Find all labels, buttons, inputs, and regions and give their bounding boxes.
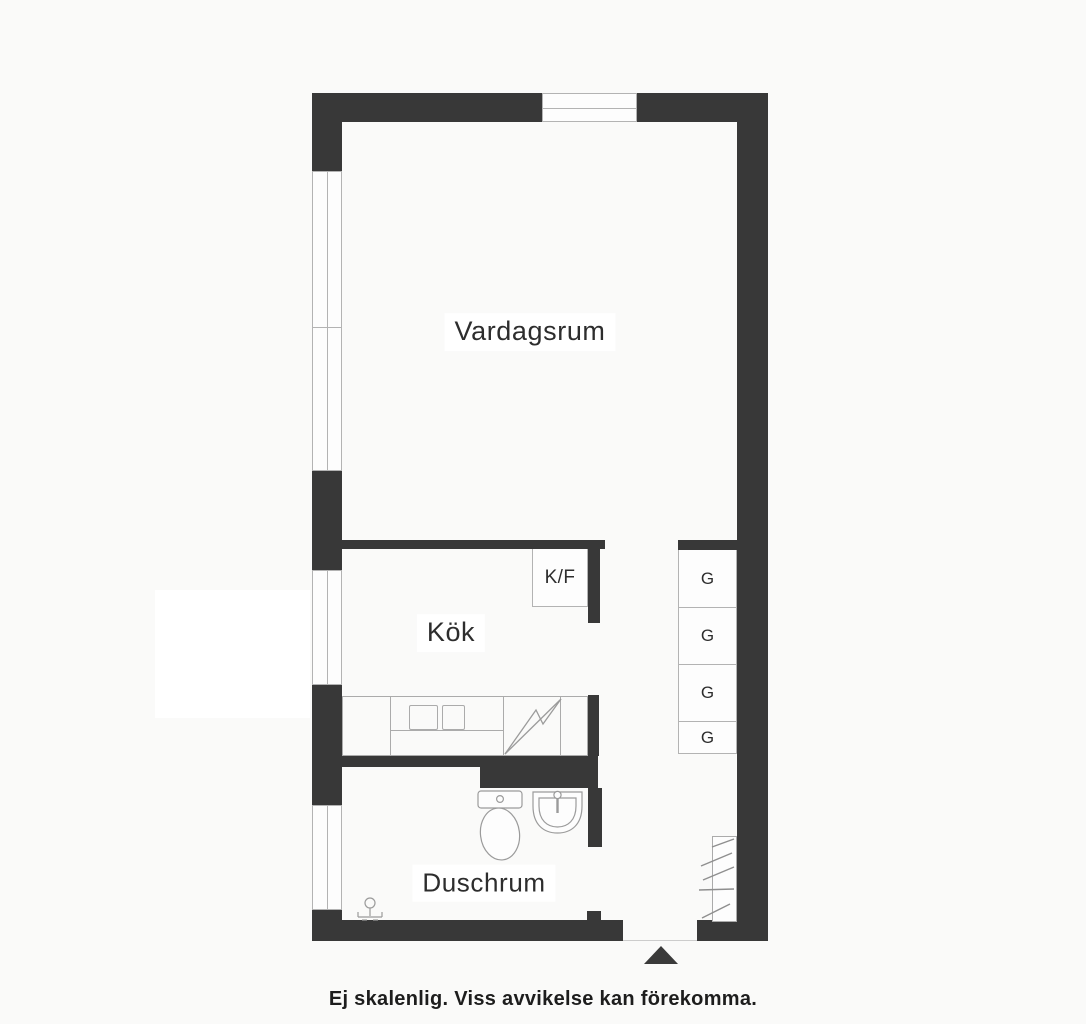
background-patch [155,590,310,718]
disclaimer-text: Ej skalenlig. Viss avvikelse kan förekom… [0,988,1086,1011]
wall-wardrobe-header [678,540,737,550]
toilet-icon [477,791,522,862]
wall-shower-right [588,788,602,847]
counter-edge-line [390,730,504,731]
room-label-living: Vardagsrum [444,313,615,351]
window-divider [313,327,341,328]
room-label-shower: Duschrum [412,865,555,902]
wardrobe-label: G [701,728,714,748]
wardrobe-cell: G [679,607,736,664]
window-left-3 [312,805,342,910]
room-label-kitchen: Kök [417,614,485,652]
stove-burner-icon [409,705,438,730]
wall-shower-door-jamb [587,911,601,921]
shower-drain-icon [358,898,382,920]
window-glazing-line [327,571,328,684]
wall-right [737,93,768,941]
stove-burner-icon [442,705,465,730]
wardrobe-label: G [701,683,714,703]
sink-icon [533,791,582,833]
wardrobe-cell: G [679,721,736,753]
window-left-1 [312,171,342,471]
entrance-arrow-icon [644,946,678,964]
wardrobe-label: G [701,569,714,589]
counter-divider [503,697,504,755]
counter-divider [560,697,561,755]
window-left-2 [312,570,342,685]
wall-left-segment-2 [312,471,342,570]
fridge-freezer-label: K/F [545,567,576,589]
wardrobe-cell: G [679,550,736,607]
counter-divider [390,697,391,755]
window-glazing-line [543,108,636,109]
vent-hatch-icon [712,836,737,922]
fridge-freezer-closet: K/F [532,549,588,607]
window-glazing-line [327,806,328,909]
wardrobe-label: G [701,626,714,646]
window-top [542,93,637,122]
wall-kitchen-right-stub [588,695,599,756]
floor-plan: K/F G G G G [0,0,1086,1024]
window-glazing-line [327,172,328,470]
kitchen-counter [342,696,588,756]
wall-kf-stub [588,549,600,623]
wall-top-left [312,93,542,122]
wall-left-segment-3 [312,685,342,805]
wall-left-segment-1 [312,93,342,171]
wall-bottom-left [312,920,623,941]
wall-kitchen-top [342,540,605,549]
wall-bottom-right [697,920,768,941]
wardrobe-cell: G [679,664,736,721]
wall-shower-top-block [480,756,598,788]
wardrobe-column: G G G G [678,550,737,754]
wall-shower-top [342,756,490,767]
